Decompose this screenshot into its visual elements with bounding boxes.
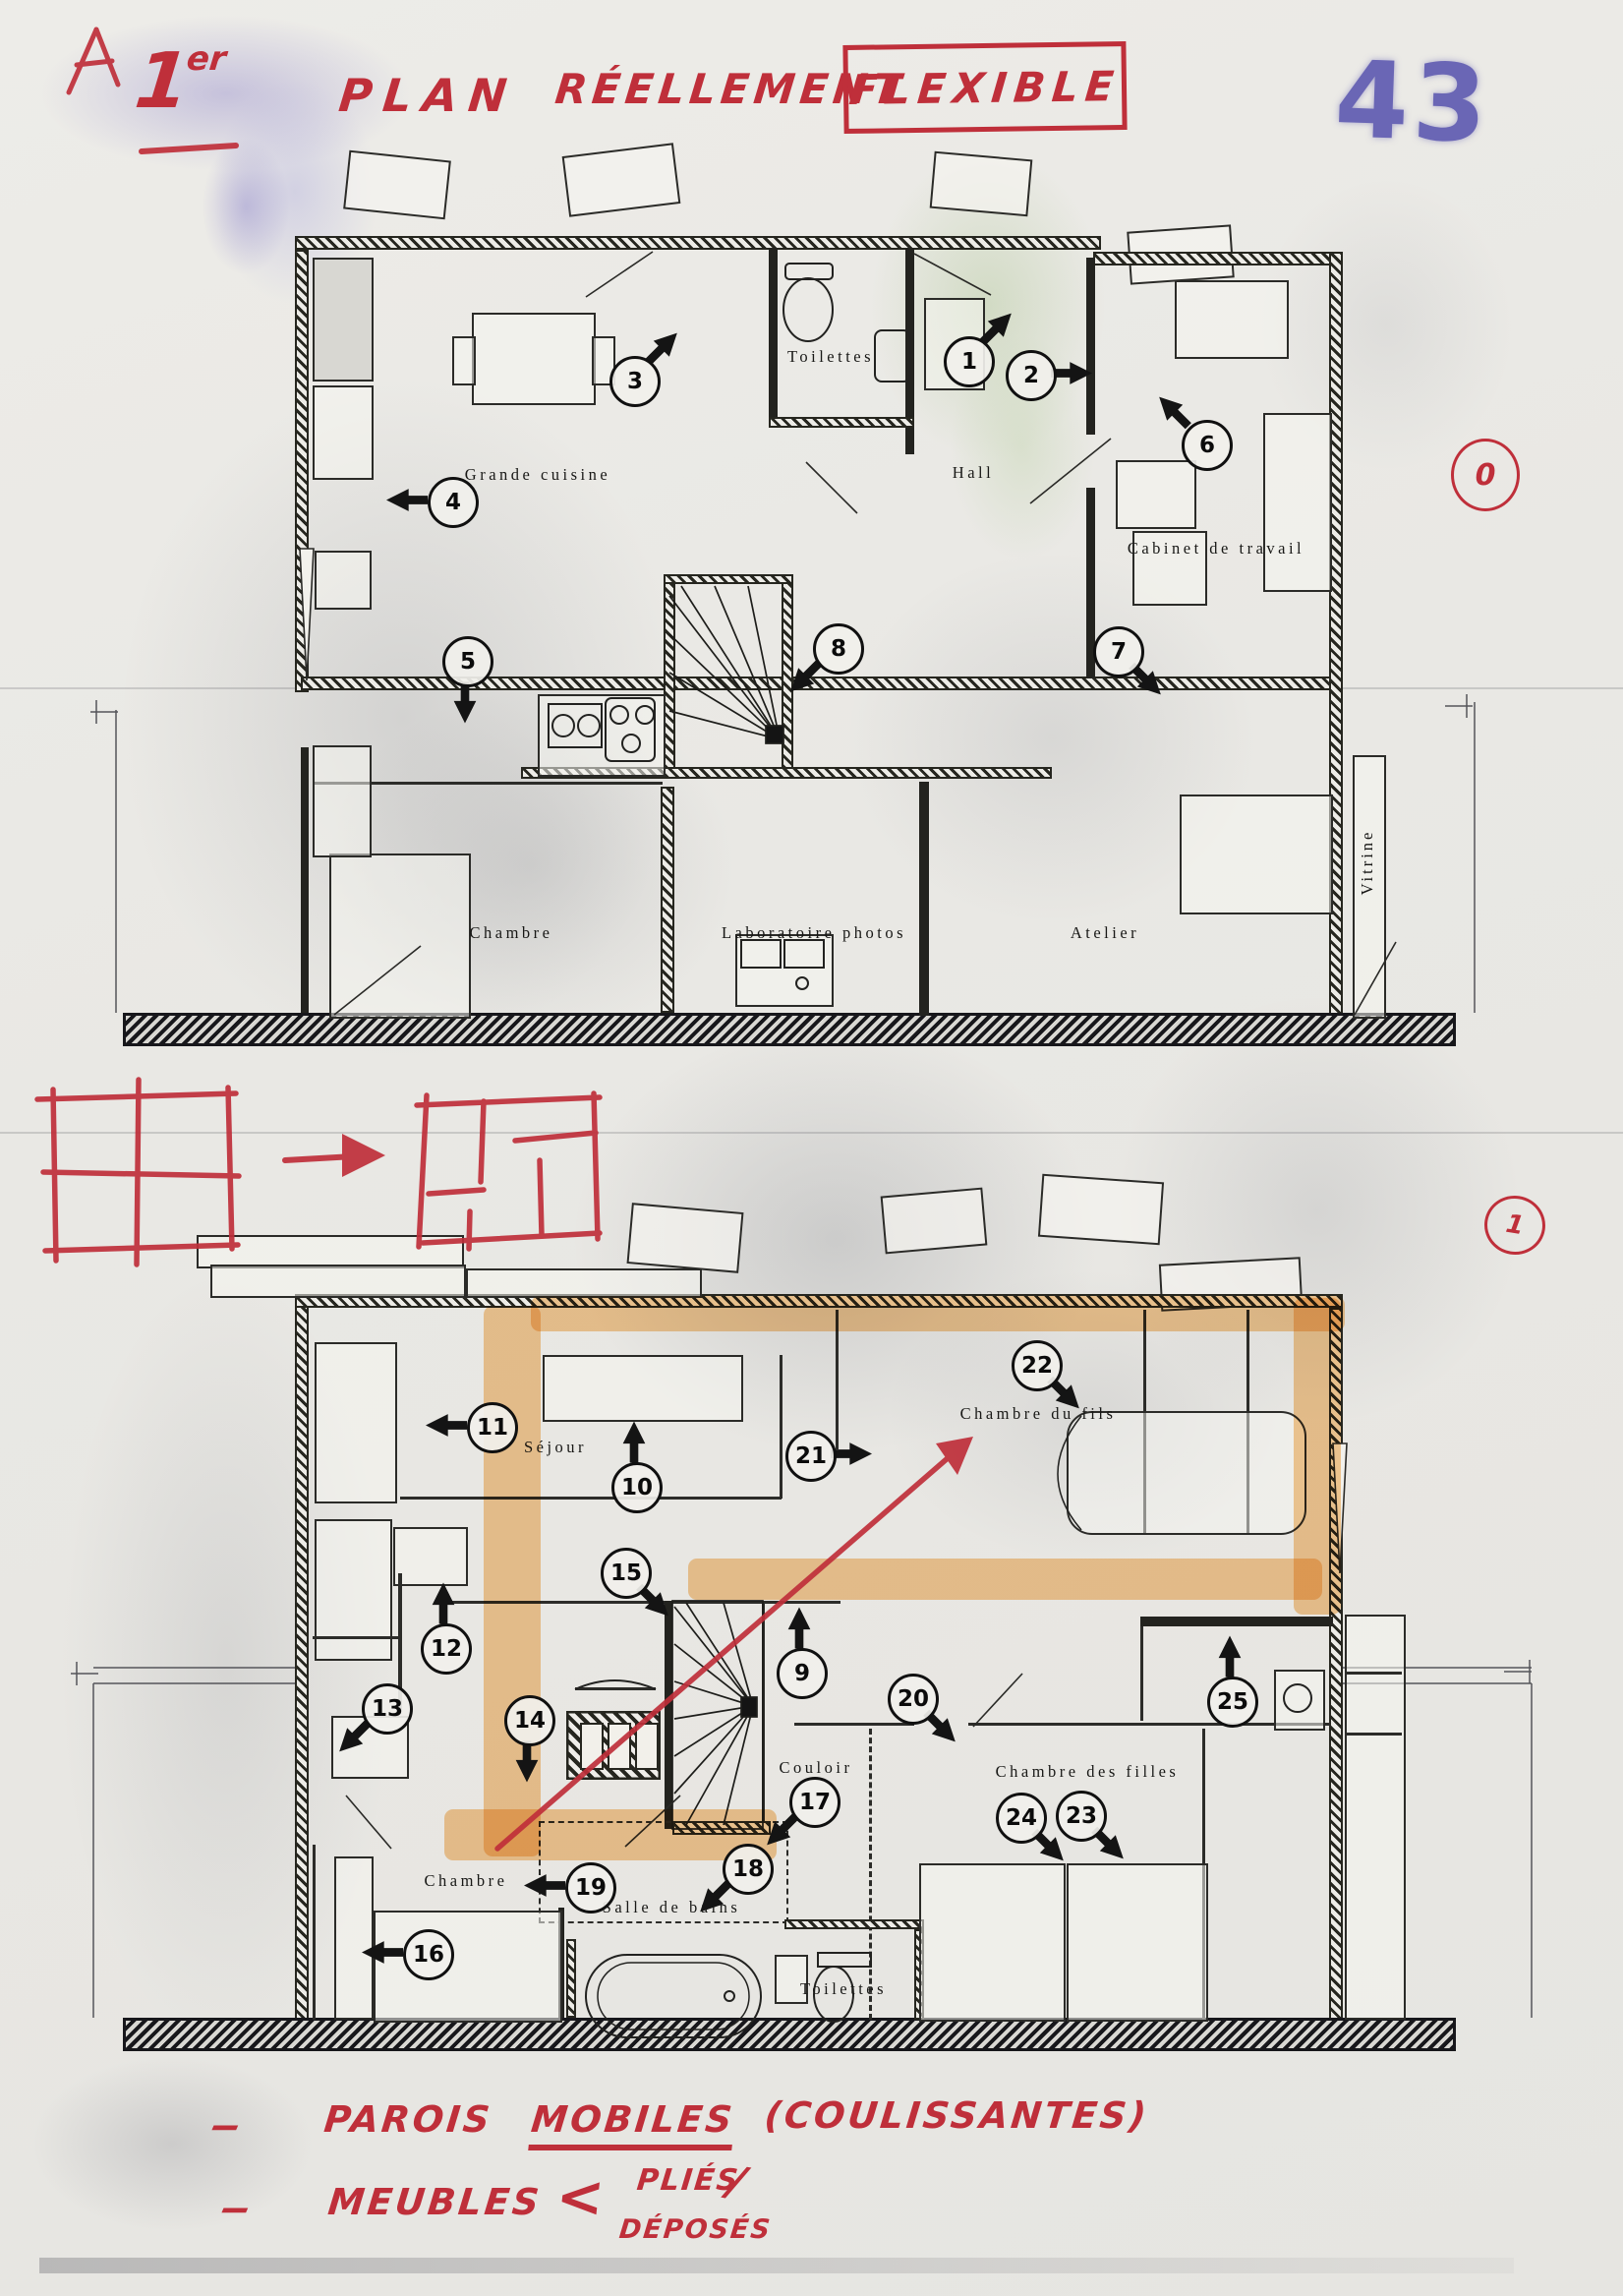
wall [301, 747, 309, 1015]
window-sash [930, 151, 1033, 216]
marker-1: 1 [944, 336, 995, 387]
furniture [210, 1265, 466, 1298]
facade-wall [123, 2018, 1456, 2051]
scanned-floor-plan-page: 1 er PLAN RÉELLEMENT FLEXIBLE 43 0 1 – P… [0, 0, 1623, 2296]
orange-highlight [688, 1559, 1322, 1600]
marker-15: 15 [601, 1548, 652, 1599]
wall [919, 782, 929, 1016]
wall [664, 574, 793, 584]
wall [665, 1601, 672, 1829]
marker-4: 4 [428, 477, 479, 528]
orange-highlight [531, 1296, 1345, 1331]
furniture [334, 1856, 374, 2020]
note1-dash: – [208, 2104, 249, 2147]
wall [1345, 1672, 1402, 1675]
marker-13: 13 [362, 1683, 413, 1735]
room-label-atelier: Atelier [1071, 923, 1139, 943]
room-label-chambre: Chambre [425, 1871, 508, 1891]
wall [794, 1723, 914, 1726]
wall [769, 417, 914, 428]
wall [1086, 258, 1095, 435]
room-label-hall: Hall [953, 463, 994, 483]
marker-25: 25 [1207, 1677, 1258, 1728]
red-underline-1er [142, 146, 236, 151]
orange-highlight [484, 1306, 541, 1856]
note2-meubles: MEUBLES [326, 2181, 544, 2223]
wall [1345, 1733, 1402, 1736]
furniture [472, 313, 596, 405]
wall [295, 1294, 309, 2022]
wall [295, 236, 1101, 250]
furniture [543, 1355, 743, 1422]
cabinet-slot [580, 1723, 604, 1770]
scan-ghost-patch [29, 2055, 315, 2232]
wall [313, 1845, 316, 2020]
note1-coulissantes: (COULISSANTES) [763, 2094, 1151, 2137]
window-sash [627, 1203, 744, 1273]
marker-22: 22 [1012, 1340, 1063, 1391]
cabinet-slot [635, 1723, 659, 1770]
wall [566, 1711, 661, 1780]
window-sash [1038, 1174, 1164, 1245]
marker-14: 14 [504, 1695, 555, 1746]
wall [869, 1729, 875, 2020]
furniture [452, 336, 476, 385]
marker-8: 8 [813, 623, 864, 675]
furniture [374, 1911, 562, 2023]
fixtures [549, 264, 1311, 2037]
furniture [197, 1235, 464, 1268]
room-label-laboratoire-photos: Laboratoire photos [722, 923, 906, 943]
marker-24: 24 [996, 1793, 1047, 1844]
furniture [315, 1519, 392, 1661]
scan-streak [39, 2258, 1514, 2273]
furniture [1067, 1411, 1306, 1535]
wall [575, 1687, 656, 1690]
note1-parois: PAROIS [322, 2098, 494, 2141]
title-number: 1 [132, 43, 193, 120]
title-word-flexible: FLEXIBLE [847, 62, 1123, 114]
furniture [1274, 1670, 1325, 1731]
marker-19: 19 [565, 1862, 616, 1913]
marker-9-arrow-up [786, 1608, 813, 1649]
furniture [919, 1863, 1066, 2022]
marker-2: 2 [1006, 350, 1057, 401]
wall [780, 1355, 783, 1499]
window-sash [562, 143, 681, 216]
marker-12-arrow-up [431, 1583, 457, 1624]
wall [400, 1497, 782, 1500]
page-number: 43 [1333, 38, 1493, 166]
wall [1093, 252, 1343, 265]
plan-badge-1-label: 1 [1504, 1209, 1527, 1241]
wall [762, 1601, 765, 1829]
window-sash [343, 150, 451, 220]
marker-17: 17 [789, 1777, 840, 1828]
room-label-chambre-des-filles: Chambre des filles [996, 1762, 1180, 1782]
red-corner-scribble [69, 29, 118, 92]
furniture [1263, 413, 1332, 592]
marker-11-arrow-left [426, 1412, 467, 1439]
title-word-plan: PLAN [336, 69, 520, 122]
marker-6: 6 [1182, 420, 1233, 471]
wall [1140, 1626, 1143, 1721]
note2-deposes: DÉPOSÉS [617, 2214, 773, 2245]
title-flexible-box: FLEXIBLE [842, 41, 1127, 134]
marker-7: 7 [1093, 626, 1144, 677]
wall [566, 1939, 576, 2018]
stair-upper [669, 586, 783, 743]
furniture [315, 1342, 397, 1503]
room-label-toilettes: Toilettes [800, 1979, 887, 1999]
furniture [313, 745, 372, 857]
wall [1140, 1617, 1333, 1626]
wall [784, 1919, 924, 1929]
title-number-suffix: er [185, 39, 228, 79]
furniture [735, 934, 834, 1007]
furniture [1175, 280, 1289, 359]
furniture [1116, 460, 1196, 529]
furniture [1067, 1863, 1208, 2022]
plan-badge-1: 1 [1480, 1192, 1550, 1260]
marker-23: 23 [1056, 1791, 1107, 1842]
scan-ghost-patch [202, 138, 290, 275]
furniture [393, 1527, 468, 1586]
room-label-couloir: Couloir [780, 1758, 853, 1778]
cabinet-slot [608, 1723, 631, 1770]
furniture [1180, 795, 1333, 914]
wall [661, 787, 674, 1013]
stair-lower [672, 1601, 763, 1829]
room-label-chambre-du-fils: Chambre du fils [960, 1404, 1117, 1424]
wall [295, 250, 309, 692]
marker-10-arrow-up [621, 1422, 648, 1463]
note2-brace: < [552, 2163, 608, 2230]
wall [313, 1636, 401, 1639]
furniture [329, 854, 471, 1019]
furniture [315, 551, 372, 610]
plan-badge-0-label: 0 [1476, 458, 1496, 493]
red-sketch-arrow [285, 1134, 385, 1177]
room-label-cabinet-de-travail: Cabinet de travail [1128, 539, 1304, 559]
room-label-vitrine: Vitrine [1358, 830, 1377, 896]
wall [769, 248, 778, 423]
facade-wall [123, 1013, 1456, 1046]
orange-highlight [444, 1809, 777, 1860]
room-label-chambre: Chambre [470, 923, 553, 943]
furniture [313, 258, 374, 382]
note2-dash: – [218, 2187, 259, 2229]
room-label-grande-cuisine: Grande cuisine [465, 465, 610, 485]
marker-21: 21 [785, 1431, 837, 1482]
note1-mobiles: MOBILES [528, 2098, 736, 2150]
room-label-toilettes: Toilettes [787, 347, 874, 367]
marker-10: 10 [611, 1462, 663, 1513]
marker-5: 5 [442, 636, 493, 687]
furniture [313, 385, 374, 480]
wall [782, 582, 793, 777]
marker-20: 20 [888, 1674, 939, 1725]
red-sketch-grid-after [417, 1093, 600, 1249]
plan-badge-0: 0 [1451, 439, 1520, 511]
furniture [466, 1268, 702, 1298]
marker-12: 12 [421, 1623, 472, 1675]
marker-16: 16 [403, 1929, 454, 1980]
window-sash [881, 1188, 988, 1255]
furniture [538, 694, 666, 777]
marker-4-arrow-left [386, 487, 428, 513]
marker-3: 3 [609, 356, 661, 407]
marker-25-arrow-up [1217, 1636, 1244, 1678]
marker-9: 9 [777, 1648, 828, 1699]
marker-11: 11 [467, 1402, 518, 1453]
marker-18: 18 [723, 1844, 774, 1895]
furniture [1345, 1615, 1406, 2020]
